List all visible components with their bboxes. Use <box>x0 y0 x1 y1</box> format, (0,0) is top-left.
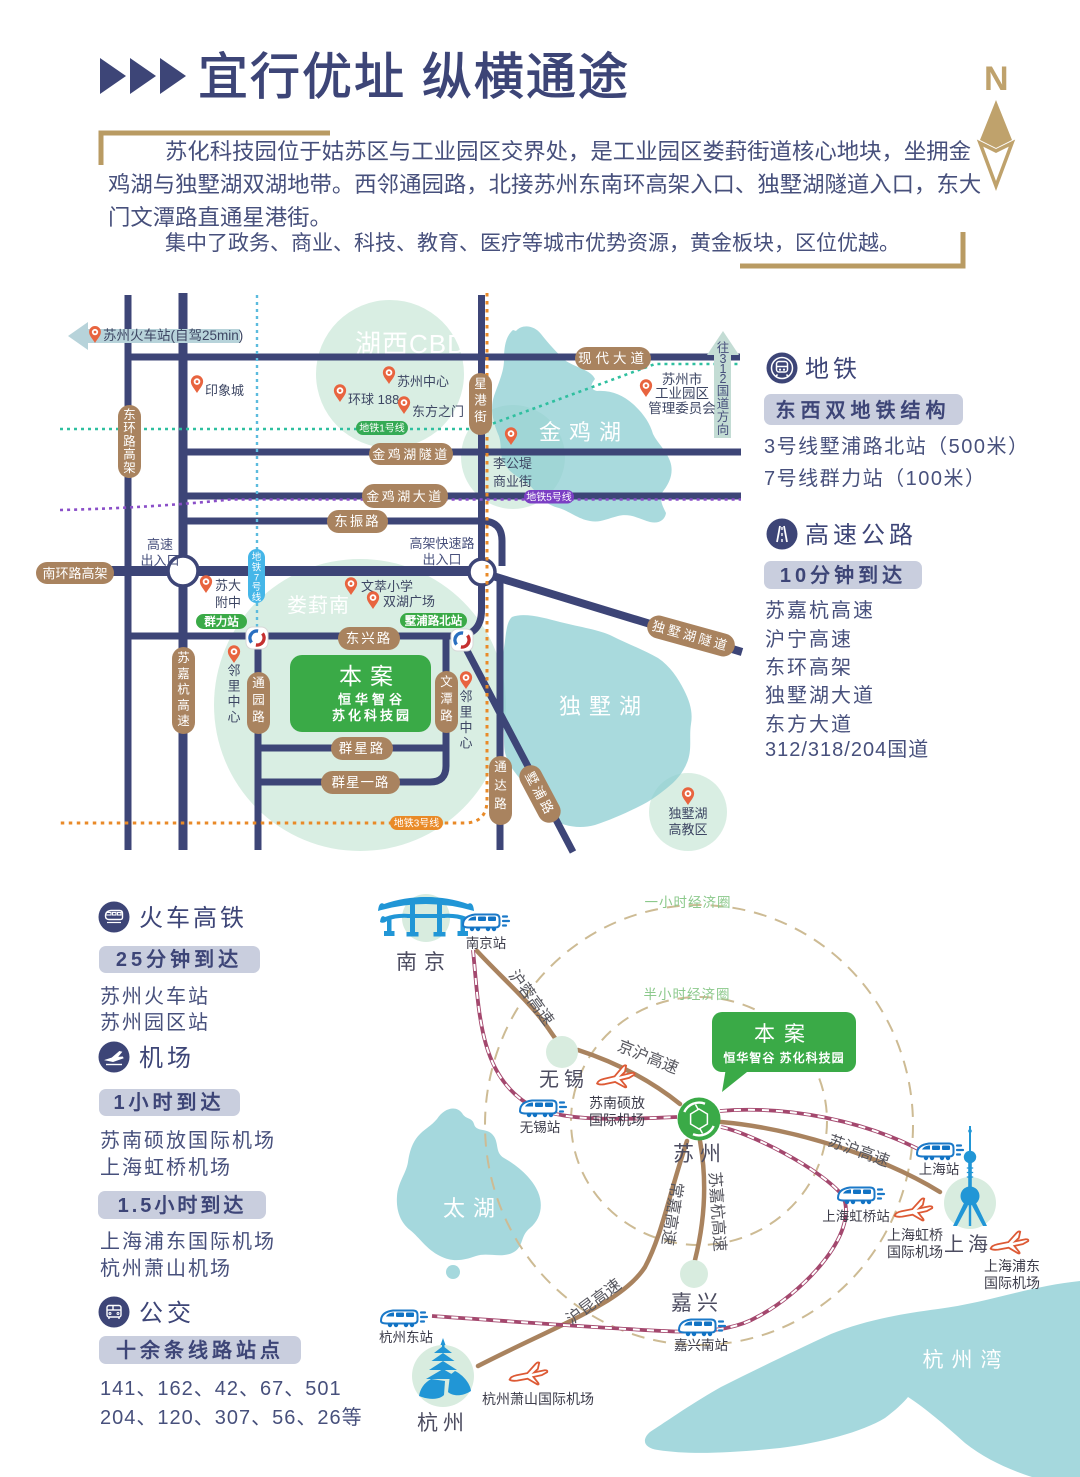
svg-text:苏化科技园位于姑苏区与工业园区交界处，是工业园区娄葑街道核心: 苏化科技园位于姑苏区与工业园区交界处，是工业园区娄葑街道核心地块，坐拥金 <box>165 139 971 164</box>
svg-text:嘉兴南站: 嘉兴南站 <box>674 1338 728 1353</box>
svg-text:宜行优址 纵横通途: 宜行优址 纵横通途 <box>198 49 630 105</box>
svg-text:公交: 公交 <box>139 1300 195 1327</box>
svg-text:本案: 本案 <box>754 1023 814 1046</box>
svg-text:独墅湖: 独墅湖 <box>559 694 649 719</box>
svg-text:312/318/204国道: 312/318/204国道 <box>765 738 929 761</box>
svg-text:苏南硕放: 苏南硕放 <box>589 1095 645 1111</box>
svg-text:邻里中心: 邻里中心 <box>459 689 472 751</box>
svg-text:25分钟到达: 25分钟到达 <box>116 947 242 971</box>
svg-text:1.5小时到达: 1.5小时到达 <box>118 1194 247 1217</box>
svg-text:附中: 附中 <box>215 595 241 610</box>
svg-text:通达路: 通达路 <box>494 760 507 811</box>
svg-text:工业园区: 工业园区 <box>655 386 709 401</box>
svg-text:苏化科技园: 苏化科技园 <box>332 708 412 723</box>
svg-text:国际机场: 国际机场 <box>887 1244 943 1260</box>
svg-text:N: N <box>984 60 1009 98</box>
svg-text:本案: 本案 <box>339 663 401 689</box>
svg-text:苏嘉杭高速: 苏嘉杭高速 <box>765 599 875 622</box>
svg-text:独墅湖: 独墅湖 <box>668 806 707 821</box>
svg-text:往312国道方向: 往312国道方向 <box>717 340 730 437</box>
svg-text:苏州: 苏州 <box>673 1143 727 1166</box>
svg-text:204、120、307、56、26等: 204、120、307、56、26等 <box>100 1406 363 1429</box>
svg-text:东兴路: 东兴路 <box>346 631 393 646</box>
svg-text:文潭路: 文潭路 <box>440 674 453 723</box>
svg-text:南环路高架: 南环路高架 <box>42 566 107 581</box>
svg-text:东方大道: 东方大道 <box>765 713 853 736</box>
svg-text:十余条线路站点: 十余条线路站点 <box>116 1338 284 1362</box>
svg-text:1小时到达: 1小时到达 <box>113 1091 224 1114</box>
svg-text:苏州园区站: 苏州园区站 <box>100 1011 210 1034</box>
svg-text:李公堤: 李公堤 <box>493 456 532 471</box>
svg-text:高速公路: 高速公路 <box>805 522 917 549</box>
svg-text:杭州: 杭州 <box>417 1412 469 1435</box>
svg-text:苏州市: 苏州市 <box>662 371 703 387</box>
svg-text:上海浦东: 上海浦东 <box>984 1258 1040 1274</box>
svg-text:10分钟到达: 10分钟到达 <box>780 563 906 587</box>
svg-text:恒华智谷: 恒华智谷 <box>338 692 406 707</box>
svg-text:苏嘉杭高速: 苏嘉杭高速 <box>177 650 190 728</box>
svg-text:出入口: 出入口 <box>140 553 179 568</box>
svg-text:太湖: 太湖 <box>443 1196 503 1221</box>
svg-text:东西双地铁结构: 东西双地铁结构 <box>776 398 951 422</box>
svg-text:苏州火车站: 苏州火车站 <box>100 985 210 1008</box>
svg-text:高速: 高速 <box>147 537 173 552</box>
svg-text:高教区: 高教区 <box>668 822 707 837</box>
svg-text:墅浦路北站: 墅浦路北站 <box>405 614 463 628</box>
svg-text:东环高架: 东环高架 <box>765 656 853 679</box>
svg-text:国际机场: 国际机场 <box>589 1112 645 1128</box>
svg-text:通园路: 通园路 <box>252 676 265 724</box>
svg-text:金鸡湖: 金鸡湖 <box>539 420 629 445</box>
svg-text:群星一路: 群星一路 <box>332 775 390 790</box>
svg-text:东环路高架: 东环路高架 <box>123 408 136 475</box>
svg-text:苏南硕放国际机场: 苏南硕放国际机场 <box>100 1129 276 1152</box>
svg-text:集中了政务、商业、科技、教育、医疗等城市优势资源，黄金板块，: 集中了政务、商业、科技、教育、医疗等城市优势资源，黄金板块，区位优越。 <box>165 232 900 255</box>
svg-text:鸡湖与独墅湖双湖地带。西邻通园路，北接苏州东南环高架入口、独: 鸡湖与独墅湖双湖地带。西邻通园路，北接苏州东南环高架入口、独墅湖隧道入口，东大 <box>108 172 981 197</box>
svg-text:一小时经济圈: 一小时经济圈 <box>645 895 732 910</box>
svg-text:上海站: 上海站 <box>919 1162 960 1177</box>
svg-text:环球 188: 环球 188 <box>348 392 399 407</box>
svg-text:独墅湖大道: 独墅湖大道 <box>765 684 875 707</box>
svg-text:杭州湾: 杭州湾 <box>923 1349 1010 1372</box>
svg-text:苏大: 苏大 <box>215 578 241 593</box>
svg-text:地铁5号线: 地铁5号线 <box>526 491 572 504</box>
svg-text:地铁3号线: 地铁3号线 <box>394 817 440 830</box>
svg-text:群力站: 群力站 <box>203 615 239 629</box>
svg-text:管理委员会: 管理委员会 <box>648 401 716 416</box>
svg-text:地铁1号线: 地铁1号线 <box>359 422 405 435</box>
svg-text:商业街: 商业街 <box>493 474 532 489</box>
svg-text:东振路: 东振路 <box>334 514 381 529</box>
svg-text:东方之门: 东方之门 <box>412 404 464 419</box>
svg-text:上海虹桥: 上海虹桥 <box>887 1227 943 1243</box>
svg-text:出入口: 出入口 <box>422 552 461 567</box>
svg-text:无锡: 无锡 <box>539 1068 589 1091</box>
svg-text:无锡站: 无锡站 <box>520 1120 561 1135</box>
svg-text:杭州东站: 杭州东站 <box>379 1330 433 1345</box>
svg-text:机场: 机场 <box>139 1045 195 1072</box>
svg-text:南京站: 南京站 <box>466 936 507 951</box>
svg-text:南京: 南京 <box>396 951 452 974</box>
svg-text:上海虹桥机场: 上海虹桥机场 <box>100 1156 232 1179</box>
svg-text:火车高铁: 火车高铁 <box>139 905 247 932</box>
svg-text:金鸡湖隧道: 金鸡湖隧道 <box>372 447 450 462</box>
svg-text:嘉兴: 嘉兴 <box>671 1292 723 1315</box>
svg-text:金鸡湖大道: 金鸡湖大道 <box>366 489 444 504</box>
svg-text:群星路: 群星路 <box>339 741 386 756</box>
svg-text:上海虹桥站: 上海虹桥站 <box>822 1209 890 1224</box>
svg-text:文萃小学: 文萃小学 <box>361 579 413 594</box>
svg-text:苏州火车站(自驾25min): 苏州火车站(自驾25min) <box>103 327 243 343</box>
svg-text:邻里中心: 邻里中心 <box>227 663 240 725</box>
svg-text:3号线墅浦路北站（500米）: 3号线墅浦路北站（500米） <box>764 435 1030 458</box>
svg-text:高架快速路: 高架快速路 <box>409 536 474 551</box>
svg-text:双湖广场: 双湖广场 <box>383 594 435 609</box>
svg-text:半小时经济圈: 半小时经济圈 <box>644 987 731 1002</box>
svg-text:苏州中心: 苏州中心 <box>397 374 449 389</box>
svg-text:门文潭路直通星港街。: 门文潭路直通星港街。 <box>108 205 332 230</box>
svg-text:杭州萧山国际机场: 杭州萧山国际机场 <box>482 1391 594 1407</box>
svg-text:141、162、42、67、501: 141、162、42、67、501 <box>100 1378 342 1400</box>
svg-text:地铁: 地铁 <box>805 356 861 383</box>
svg-text:杭州萧山机场: 杭州萧山机场 <box>100 1257 232 1280</box>
svg-text:国际机场: 国际机场 <box>984 1275 1040 1291</box>
svg-text:现代大道: 现代大道 <box>578 351 648 366</box>
svg-text:7号线群力站（100米）: 7号线群力站（100米） <box>764 467 987 490</box>
svg-text:上海: 上海 <box>944 1233 992 1256</box>
svg-text:星港街: 星港街 <box>474 377 487 424</box>
svg-text:印象城: 印象城 <box>205 383 244 398</box>
svg-text:上海浦东国际机场: 上海浦东国际机场 <box>100 1230 276 1253</box>
svg-text:恒华智谷 苏化科技园: 恒华智谷 苏化科技园 <box>723 1050 844 1065</box>
svg-text:沪宁高速: 沪宁高速 <box>765 628 853 651</box>
svg-text:娄葑南: 娄葑南 <box>287 594 350 617</box>
